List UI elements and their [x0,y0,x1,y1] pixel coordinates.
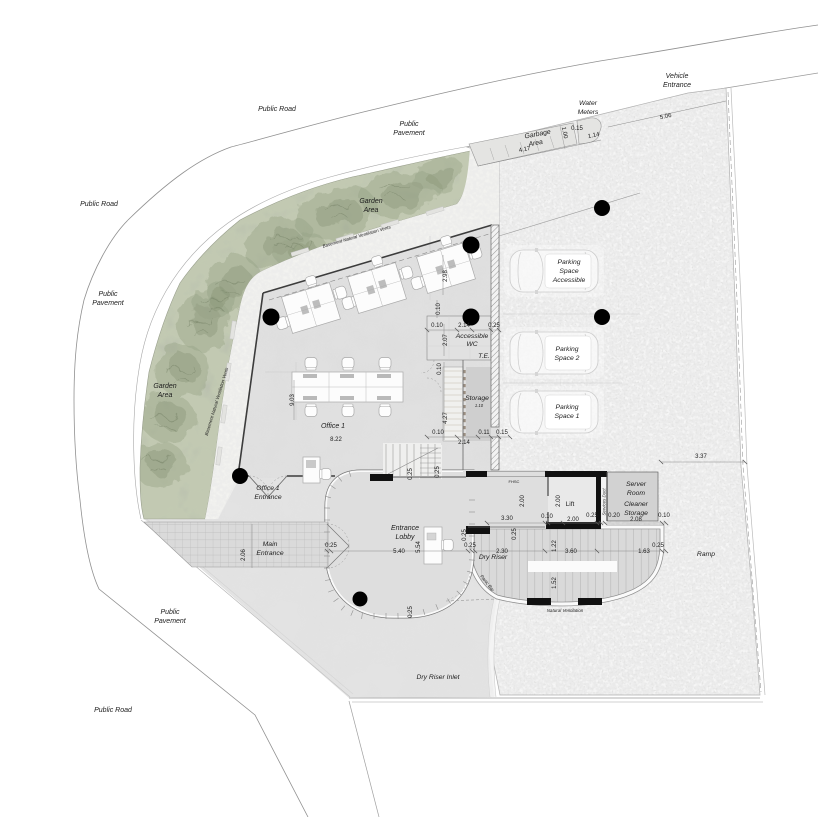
svg-text:0.25: 0.25 [586,513,598,519]
svg-text:2.30: 2.30 [496,549,508,555]
svg-text:Parking: Parking [555,404,578,411]
svg-text:Dry Riser: Dry Riser [479,554,508,561]
svg-text:1.52: 1.52 [552,577,558,589]
svg-text:Parking: Parking [557,259,580,266]
svg-text:Entrance: Entrance [254,494,281,501]
svg-text:0.25: 0.25 [408,468,414,480]
svg-text:Vehicle: Vehicle [666,73,689,80]
svg-text:Lobby: Lobby [395,534,415,541]
svg-text:Pavement: Pavement [92,300,125,307]
svg-text:2.07: 2.07 [443,334,449,346]
svg-text:0.25: 0.25 [408,606,414,618]
svg-text:Space: Space [559,268,578,275]
svg-text:Public Road: Public Road [94,707,133,714]
svg-text:Area: Area [157,392,173,399]
svg-text:Natural Ventilation: Natural Ventilation [547,608,584,613]
svg-text:Lift: Lift [566,501,575,508]
svg-text:2.00: 2.00 [567,517,579,523]
svg-text:Room: Room [627,490,645,497]
svg-text:Cleaner: Cleaner [624,501,649,508]
svg-text:Water: Water [579,100,598,107]
svg-text:Dry Riser Inlet: Dry Riser Inlet [416,674,460,681]
svg-text:0.10: 0.10 [541,514,553,520]
svg-text:Garden: Garden [359,198,382,205]
svg-text:Services Duct: Services Duct [602,488,607,516]
svg-text:5.40: 5.40 [393,549,405,555]
svg-text:0.25: 0.25 [464,543,476,549]
svg-text:Parking: Parking [555,346,578,353]
svg-text:Ramp: Ramp [697,551,715,558]
svg-text:3.60: 3.60 [565,549,577,555]
svg-text:Storage: Storage [624,510,648,517]
svg-text:5.54: 5.54 [416,541,422,553]
svg-text:0.11: 0.11 [478,430,490,436]
svg-text:3.30: 3.30 [501,516,513,522]
svg-text:4.27: 4.27 [443,412,449,424]
svg-text:0.20: 0.20 [608,513,620,519]
svg-text:FHSC: FHSC [509,479,520,484]
svg-text:0.25: 0.25 [462,529,468,541]
svg-text:2.98: 2.98 [443,270,449,282]
svg-text:2.00: 2.00 [520,495,526,507]
svg-text:1.63: 1.63 [638,549,650,555]
svg-text:Public Road: Public Road [258,106,297,113]
svg-text:Space 2: Space 2 [555,355,580,362]
svg-text:Public: Public [160,609,180,616]
svg-text:Meters: Meters [578,109,599,116]
svg-text:2.08: 2.08 [630,517,642,523]
svg-text:Accessible: Accessible [455,333,489,340]
svg-text:0.25: 0.25 [652,543,664,549]
svg-text:T.E.: T.E. [478,353,490,360]
svg-text:8.22: 8.22 [330,437,342,443]
svg-text:0.10: 0.10 [431,323,443,329]
svg-text:2.14: 2.14 [458,440,470,446]
svg-text:0.10: 0.10 [658,513,670,519]
svg-text:0.10: 0.10 [437,363,443,375]
svg-text:0.10: 0.10 [432,430,444,436]
svg-text:Public Road: Public Road [80,201,119,208]
svg-text:Entrance: Entrance [663,82,691,89]
svg-text:0.15: 0.15 [571,126,583,132]
svg-text:Entrance: Entrance [391,525,419,532]
svg-text:Entrance: Entrance [256,550,283,557]
svg-text:Garden: Garden [153,383,176,390]
svg-text:Pavement: Pavement [154,618,187,625]
svg-text:0.25: 0.25 [435,466,441,478]
svg-text:1.10: 1.10 [475,403,484,408]
svg-text:Area: Area [363,207,379,214]
svg-text:Main: Main [263,541,278,548]
svg-text:Public: Public [98,291,118,298]
svg-text:Public: Public [399,121,419,128]
svg-text:3.37: 3.37 [695,454,707,460]
svg-text:Office 1: Office 1 [256,485,280,492]
svg-text:2.06: 2.06 [241,549,247,561]
svg-text:0.10: 0.10 [436,303,442,315]
svg-text:2.00: 2.00 [556,495,562,507]
svg-text:Server: Server [626,481,647,488]
svg-text:0.25: 0.25 [512,528,518,540]
svg-text:2.14: 2.14 [458,323,470,329]
svg-text:0.15: 0.15 [496,430,508,436]
svg-text:Office 1: Office 1 [321,423,345,430]
svg-text:1.22: 1.22 [552,540,558,552]
svg-text:9.03: 9.03 [290,394,296,406]
svg-text:Storage: Storage [465,395,489,402]
svg-text:Pavement: Pavement [393,130,426,137]
svg-text:0.25: 0.25 [488,323,500,329]
svg-text:Accessible: Accessible [552,277,586,284]
svg-text:Space 1: Space 1 [555,413,580,420]
svg-text:0.25: 0.25 [325,543,337,549]
svg-text:WC: WC [466,341,477,348]
